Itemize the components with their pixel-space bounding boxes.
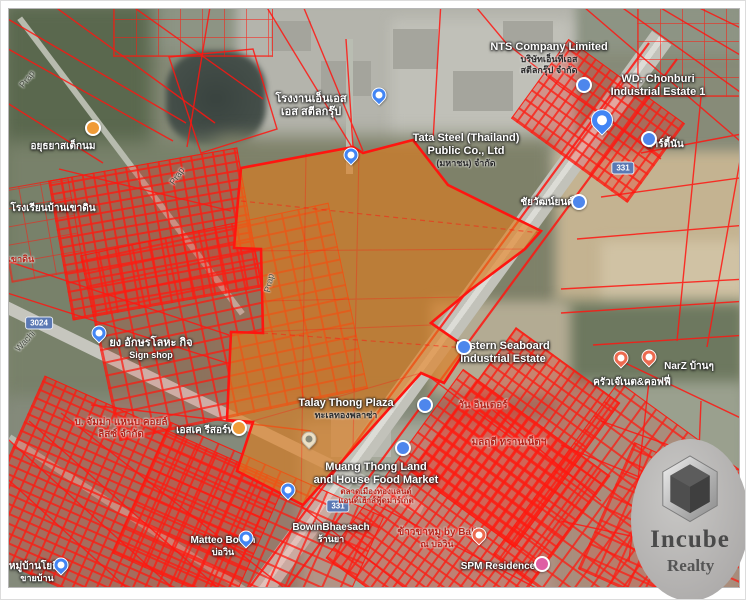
poi-label-line: WD. Chonburi (611, 73, 706, 86)
poi-label-line: สตีลกรุ๊ป จำกัด (490, 65, 607, 76)
building (453, 71, 513, 111)
poi-label-yong-aksorn-sign-shop[interactable]: ยง อักษรโลหะ กิจSign shop (109, 337, 192, 361)
incube-cube-icon (660, 455, 720, 523)
screenshot-stage: PrapPrapPrapWachi3024331331 NTS Company … (0, 0, 746, 600)
logo-brand-text: Incube (631, 526, 746, 554)
poi-label-line: (มหาชน) จำกัด (413, 158, 520, 169)
poi-label-line: มลฤดี ทรานเน็ตฯ (472, 437, 547, 449)
poi-label-line: ข้าวขาหมู by Ball (397, 527, 476, 539)
poi-label-nts-company-limited[interactable]: NTS Company Limitedบริษัทเอ็นทีเอสสตีลกร… (490, 41, 607, 75)
blue-dot-map-pin[interactable] (456, 339, 472, 355)
poi-label-ns-steel-factory[interactable]: โรงงานเอ็นเอสเอส สตีลกรุ๊ป (275, 93, 346, 119)
poi-label-chaiwat-yon[interactable]: ชัยวัฒน์ยนต์ (520, 197, 573, 209)
poi-label-line: NarZ บ้านๆ (664, 361, 714, 373)
route-shield: 3024 (25, 317, 53, 330)
poi-label-line: ตลาดเมืองทองแลนด์ (314, 487, 439, 496)
poi-label-ban-khao-din-school[interactable]: โรงเรียนบ้านเขาดิน (10, 203, 95, 215)
poi-label-line: BowinBhaesach (292, 522, 369, 534)
poi-label-talay-thong-plaza[interactable]: Talay Thong Plazaทะเลทองพลาซ่า (298, 397, 393, 421)
poi-label-spm-residence[interactable]: SPM Residence (461, 561, 535, 573)
poi-label-line: โรงเรียนบ้านเขาดิน (10, 203, 95, 215)
poi-label-line: Public Co., Ltd (413, 145, 520, 158)
poi-label-line: บ. จัมม่า แหนบ คอยล์ (74, 417, 167, 429)
poi-label-ayutthaya-steak[interactable]: อยุธยาสเต็กนม (31, 141, 96, 153)
poi-label-muang-thong-land-market[interactable]: Muang Thong Landand House Food Marketตลา… (314, 461, 439, 506)
poi-label-wan-inter[interactable]: วัน อินเตอร์ (458, 400, 507, 412)
poi-label-line: Industrial Estate (456, 353, 550, 366)
incube-realty-watermark: Incube Realty (631, 439, 746, 600)
poi-label-line: เอส สตีลกรุ๊ป (275, 106, 346, 119)
poi-label-line: เอสเค รีสอร์ท (176, 425, 234, 437)
map-world: PrapPrapPrapWachi3024331331 NTS Company … (9, 9, 739, 587)
poi-label-line: SPM Residence (461, 561, 535, 573)
pond (166, 51, 266, 146)
poi-label-line: and House Food Market (314, 474, 439, 487)
poi-label-line: ขายบ้าน (9, 573, 65, 584)
poi-label-narz-baan[interactable]: NarZ บ้านๆ (664, 361, 714, 373)
poi-label-monrudee-trannet[interactable]: มลฤดี ทรานเน็ตฯ (472, 437, 547, 449)
poi-label-khao-kha-mu-by-ball[interactable]: ข้าวขาหมู by Ballณ บ่อวิน (397, 527, 476, 549)
orange-dot-map-pin[interactable] (231, 420, 247, 436)
pink-dot-map-pin[interactable] (534, 556, 550, 572)
poi-label-line: NTS Company Limited (490, 41, 607, 54)
blue-dot-map-pin[interactable] (417, 397, 433, 413)
poi-label-jamma-leaf-spring-co[interactable]: บ. จัมม่า แหนบ คอยล์ลิสซ์ จำกัด (74, 417, 167, 441)
blue-dot-map-pin[interactable] (571, 194, 587, 210)
poi-label-line: Muang Thong Land (314, 461, 439, 474)
route-shield: 331 (611, 162, 634, 175)
poi-label-line: อยุธยาสเต็กนม (31, 141, 96, 153)
orange-dot-map-pin[interactable] (85, 120, 101, 136)
poi-label-line: Industrial Estate 1 (611, 86, 706, 99)
poi-label-line: บริษัทเอ็นทีเอส (490, 54, 607, 65)
map-canvas[interactable]: PrapPrapPrapWachi3024331331 NTS Company … (9, 9, 739, 587)
poi-label-tata-steel[interactable]: Tata Steel (Thailand)Public Co., Ltd(มหา… (413, 132, 520, 169)
poi-label-bowin-bhaesach-pharmacy[interactable]: BowinBhaesachร้านยา (292, 522, 369, 544)
poi-label-line: ชัยวัฒน์ยนต์ (520, 197, 573, 209)
poi-label-line: ลิสซ์ จำกัด (74, 429, 167, 441)
poi-label-krua-je-net-coffee[interactable]: ครัวเจ๊เนต&คอฟฟี่ (593, 377, 671, 389)
poi-label-wd-chonburi-industrial-estate[interactable]: WD. ChonburiIndustrial Estate 1 (611, 73, 706, 99)
poi-label-khao-din[interactable]: เขาดิน (9, 254, 34, 265)
poi-label-line: วัน อินเตอร์ (458, 400, 507, 412)
logo-sub-text: Realty (667, 556, 746, 576)
building (393, 29, 438, 69)
blue-dot-map-pin[interactable] (576, 77, 592, 93)
blue-dot-map-pin[interactable] (641, 131, 657, 147)
blue-dot-map-pin[interactable] (395, 440, 411, 456)
poi-label-line: ร้านยา (292, 534, 369, 545)
building (271, 21, 311, 51)
poi-label-line: แอนด์เฮ้าส์ฟู้ดมาร์เก็ต (314, 496, 439, 505)
poi-label-line: ครัวเจ๊เนต&คอฟฟี่ (593, 377, 671, 389)
poi-label-line: ณ บ่อวิน (397, 539, 476, 550)
poi-label-line: ยง อักษรโลหะ กิจ (109, 337, 192, 350)
poi-label-line: โรงงานเอ็นเอส (275, 93, 346, 106)
poi-label-line: เขาดิน (9, 254, 34, 265)
poi-label-line: Sign shop (109, 350, 192, 361)
poi-label-sk-resort[interactable]: เอสเค รีสอร์ท (176, 425, 234, 437)
parcel-grid (113, 9, 273, 57)
poi-label-line: Talay Thong Plaza (298, 397, 393, 410)
poi-label-line: ทะเลทองพลาซ่า (298, 410, 393, 421)
poi-label-line: Tata Steel (Thailand) (413, 132, 520, 145)
